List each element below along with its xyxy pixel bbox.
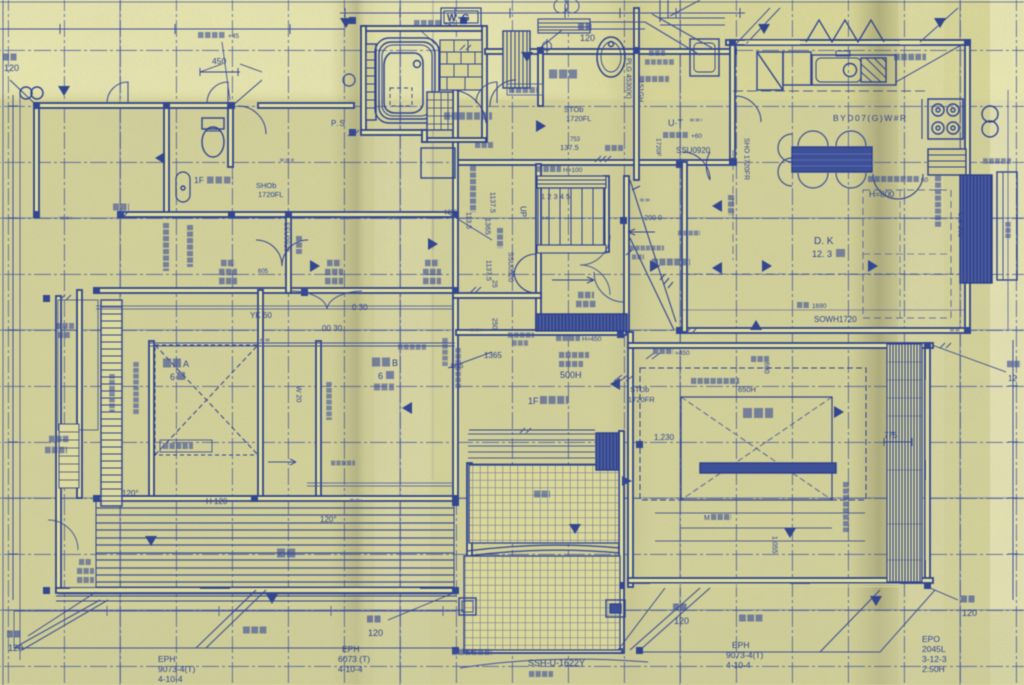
svg-text:1F: 1F bbox=[194, 175, 204, 185]
svg-text:12: 12 bbox=[1008, 374, 1017, 383]
svg-text:12. 3: 12. 3 bbox=[812, 249, 832, 259]
svg-text:EPH: EPH bbox=[342, 644, 359, 654]
svg-text:0 30: 0 30 bbox=[352, 303, 368, 312]
svg-text:1137.5: 1137.5 bbox=[485, 260, 492, 281]
svg-text:120: 120 bbox=[4, 63, 19, 73]
svg-text:-200 0: -200 0 bbox=[642, 215, 662, 222]
svg-text:1 2 3 4 5: 1 2 3 4 5 bbox=[541, 192, 570, 201]
svg-text:M: M bbox=[704, 515, 710, 522]
svg-text:+60: +60 bbox=[691, 133, 702, 140]
svg-text:SHO 1720FR: SHO 1720FR bbox=[743, 138, 750, 180]
svg-text:9073-4(T): 9073-4(T) bbox=[726, 650, 763, 660]
svg-text:1235: 1235 bbox=[450, 364, 464, 370]
svg-text:120: 120 bbox=[8, 643, 23, 653]
svg-text:9073-4(T): 9073-4(T) bbox=[158, 664, 195, 674]
svg-text:SSU0920: SSU0920 bbox=[507, 252, 514, 282]
svg-text:BYD07(G)W#R: BYD07(G)W#R bbox=[833, 113, 908, 123]
svg-text:A: A bbox=[183, 359, 189, 369]
svg-text:SSU0920: SSU0920 bbox=[283, 222, 290, 252]
svg-text:EPH: EPH bbox=[732, 640, 749, 650]
svg-text:H=800: H=800 bbox=[869, 189, 895, 199]
svg-text:60: 60 bbox=[921, 177, 929, 184]
svg-text:1235: 1235 bbox=[444, 210, 458, 216]
svg-text:2:50H: 2:50H bbox=[922, 664, 945, 674]
svg-text:3-12-3: 3-12-3 bbox=[922, 654, 947, 664]
svg-text:4-10-4: 4-10-4 bbox=[158, 674, 183, 684]
svg-text:H=450: H=450 bbox=[582, 336, 602, 343]
svg-text:1137.5: 1137.5 bbox=[489, 192, 496, 213]
svg-text:1365: 1365 bbox=[484, 218, 493, 235]
svg-text:+45: +45 bbox=[444, 21, 455, 28]
svg-text:137.5: 137.5 bbox=[560, 143, 579, 152]
svg-text:120°: 120° bbox=[320, 515, 337, 524]
svg-text:650H: 650H bbox=[738, 385, 756, 394]
svg-text:H 120: H 120 bbox=[206, 497, 228, 506]
svg-text:120: 120 bbox=[580, 33, 595, 43]
svg-text:151GH: 151GH bbox=[637, 80, 644, 102]
svg-text:500H: 500H bbox=[560, 370, 582, 380]
svg-text:U·T: U·T bbox=[668, 118, 683, 128]
svg-text:1720FL: 1720FL bbox=[566, 114, 591, 123]
svg-text:2045L: 2045L bbox=[922, 644, 946, 654]
svg-text:SHOb: SHOb bbox=[256, 181, 276, 190]
svg-text:1690: 1690 bbox=[812, 303, 827, 310]
svg-text:775: 775 bbox=[884, 431, 898, 440]
svg-text:1,055: 1,055 bbox=[771, 536, 778, 554]
svg-text:1720FR: 1720FR bbox=[628, 395, 655, 404]
svg-text:6073 (T): 6073 (T) bbox=[338, 654, 370, 664]
svg-text:1720F: 1720F bbox=[655, 138, 662, 156]
svg-text:120: 120 bbox=[674, 616, 689, 626]
svg-text:PLG 4530(K): PLG 4530(K) bbox=[625, 58, 632, 99]
svg-text:25: 25 bbox=[491, 280, 498, 288]
svg-text:4-10-4: 4-10-4 bbox=[338, 664, 363, 674]
svg-text:1F: 1F bbox=[528, 396, 539, 406]
svg-text:SSU0920: SSU0920 bbox=[676, 146, 711, 155]
svg-text:450: 450 bbox=[212, 56, 226, 66]
svg-text:SOWH1720: SOWH1720 bbox=[814, 315, 857, 324]
svg-text:113,5: 113,5 bbox=[465, 212, 472, 229]
svg-text:H=100: H=100 bbox=[563, 167, 583, 174]
svg-text:1720FL: 1720FL bbox=[258, 190, 283, 199]
svg-text:UP: UP bbox=[519, 206, 528, 217]
svg-text:YK 60: YK 60 bbox=[250, 311, 272, 320]
svg-text:120: 120 bbox=[368, 628, 383, 638]
svg-text:C.B 202: C.B 202 bbox=[957, 212, 964, 237]
svg-text:STOb: STOb bbox=[564, 105, 583, 114]
svg-text:EPO: EPO bbox=[922, 634, 940, 644]
svg-text:6: 6 bbox=[378, 371, 383, 381]
svg-text:B: B bbox=[392, 358, 398, 368]
svg-text:605: 605 bbox=[258, 269, 269, 275]
svg-text:1,230: 1,230 bbox=[654, 433, 675, 442]
svg-text:4-10-4: 4-10-4 bbox=[726, 660, 751, 670]
svg-text:SSH-U-1622Y: SSH-U-1622Y bbox=[528, 658, 585, 668]
svg-text:6: 6 bbox=[170, 372, 175, 382]
svg-text:+45: +45 bbox=[228, 33, 239, 40]
svg-text:120: 120 bbox=[962, 608, 977, 618]
svg-text:STDb: STDb bbox=[630, 385, 649, 394]
svg-text:1365: 1365 bbox=[484, 351, 502, 360]
svg-text:W 20: W 20 bbox=[295, 386, 302, 402]
svg-text:EPH: EPH bbox=[158, 654, 175, 664]
svg-text:=450: =450 bbox=[675, 350, 690, 357]
svg-text:600: 600 bbox=[763, 362, 770, 374]
svg-text:250: 250 bbox=[491, 318, 498, 330]
svg-text:120°: 120° bbox=[122, 489, 139, 498]
svg-text:D. K: D. K bbox=[814, 236, 834, 247]
svg-text:P.S: P.S bbox=[331, 119, 346, 128]
svg-text:00 30: 00 30 bbox=[322, 324, 343, 333]
